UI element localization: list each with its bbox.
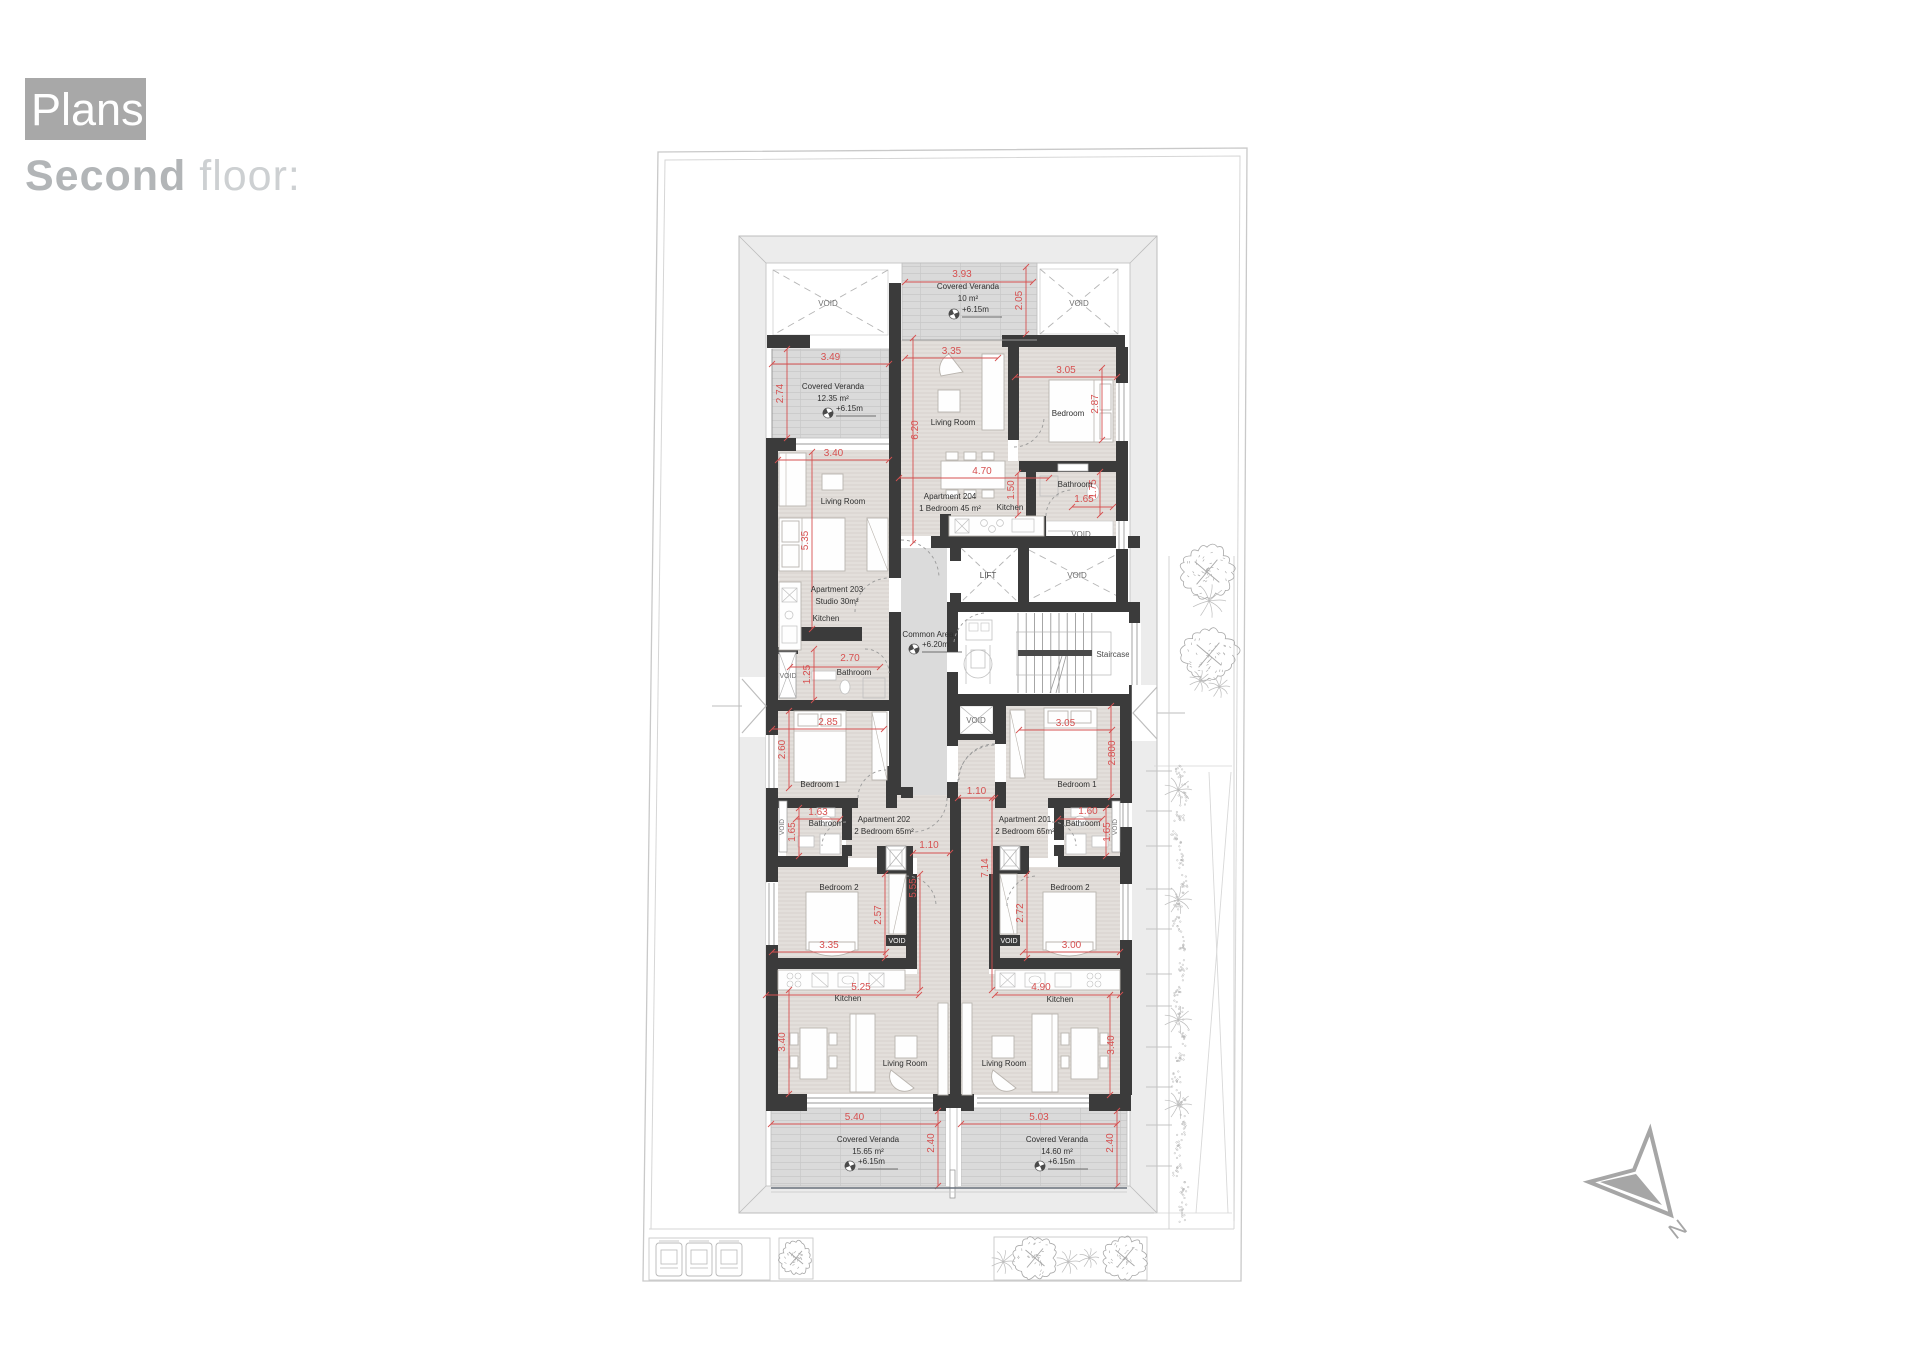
svg-text:1.60: 1.60 [1078,806,1098,817]
svg-text:1 Bedroom 45 m²: 1 Bedroom 45 m² [919,504,981,513]
svg-text:VOID: VOID [888,938,905,945]
svg-text:Living Room: Living Room [931,418,976,427]
svg-text:2 Bedroom 65m²: 2 Bedroom 65m² [854,827,914,836]
svg-text:Bedroom 2: Bedroom 2 [1050,883,1090,892]
svg-text:Apartment 202: Apartment 202 [858,815,911,824]
svg-text:LIFT: LIFT [980,571,997,580]
svg-text:3.35: 3.35 [819,940,839,951]
svg-text:2.800: 2.800 [1107,740,1118,765]
svg-text:Apartment 204: Apartment 204 [924,492,977,501]
svg-text:1.65: 1.65 [1102,822,1113,842]
svg-text:Kitchen: Kitchen [835,994,862,1003]
svg-text:2.40: 2.40 [926,1133,937,1153]
svg-text:Plans: Plans [31,84,144,135]
svg-text:VOID: VOID [779,673,796,680]
svg-text:2.72: 2.72 [1015,903,1026,923]
svg-text:+6.15m: +6.15m [962,305,989,314]
svg-text:VOID: VOID [818,299,838,308]
svg-text:+6.15m: +6.15m [836,404,863,413]
svg-text:2.57: 2.57 [873,905,884,925]
svg-text:1.25: 1.25 [802,664,813,684]
svg-text:Kitchen: Kitchen [997,503,1024,512]
svg-text:1.10: 1.10 [967,786,987,797]
svg-text:VOID: VOID [1067,571,1087,580]
svg-text:Living Room: Living Room [982,1059,1027,1068]
svg-text:2.87: 2.87 [1090,394,1101,414]
svg-text:VOID: VOID [1069,299,1089,308]
svg-text:2.70: 2.70 [840,653,860,664]
svg-text:Living Room: Living Room [821,497,866,506]
svg-text:Studio 30m²: Studio 30m² [815,597,858,606]
svg-text:Covered Veranda: Covered Veranda [937,282,1000,291]
svg-text:3.05: 3.05 [1056,365,1076,376]
svg-text:+6.15m: +6.15m [1048,1157,1075,1166]
svg-text:3.40: 3.40 [824,448,844,459]
svg-text:2.85: 2.85 [818,717,838,728]
svg-text:VOID: VOID [779,819,786,835]
svg-text:Apartment 201: Apartment 201 [999,815,1052,824]
svg-text:N: N [1664,1214,1692,1243]
svg-text:Covered Veranda: Covered Veranda [802,382,865,391]
svg-text:12.35 m²: 12.35 m² [817,394,849,403]
svg-text:Bedroom 1: Bedroom 1 [800,780,840,789]
svg-text:Bathroom: Bathroom [1058,480,1093,489]
svg-text:Bathroom: Bathroom [1066,819,1101,828]
svg-text:Second floor:: Second floor: [25,152,301,200]
svg-text:4.90: 4.90 [1031,982,1051,993]
svg-text:14.60 m²: 14.60 m² [1041,1147,1073,1156]
svg-text:5.25: 5.25 [851,982,871,993]
svg-text:Covered Veranda: Covered Veranda [1026,1135,1089,1144]
svg-text:5.35: 5.35 [800,530,811,550]
svg-text:2.05: 2.05 [1014,290,1025,310]
svg-text:Kitchen: Kitchen [813,614,840,623]
svg-text:VOID: VOID [1000,938,1017,945]
svg-text:1.10: 1.10 [919,840,939,851]
svg-text:3.49: 3.49 [821,352,841,363]
svg-text:1.65: 1.65 [1074,494,1094,505]
svg-text:Kitchen: Kitchen [1047,995,1074,1004]
svg-text:3.05: 3.05 [1056,718,1076,729]
svg-text:3.93: 3.93 [952,269,972,280]
svg-text:5.40: 5.40 [845,1112,865,1123]
svg-text:Bathroom: Bathroom [809,819,844,828]
svg-text:Staircase: Staircase [1096,650,1130,659]
svg-text:Bedroom 2: Bedroom 2 [819,883,859,892]
svg-text:2.60: 2.60 [777,739,788,759]
svg-text:1.65: 1.65 [787,822,798,842]
svg-text:VOID: VOID [966,716,986,725]
svg-text:3.00: 3.00 [1062,940,1082,951]
svg-text:15.65 m²: 15.65 m² [852,1147,884,1156]
svg-text:7.14: 7.14 [980,858,991,878]
svg-text:+6.15m: +6.15m [858,1157,885,1166]
svg-text:Apartment 203: Apartment 203 [811,585,864,594]
svg-text:6.20: 6.20 [910,420,921,440]
svg-text:1.50: 1.50 [1006,480,1017,500]
svg-text:2 Bedroom 65m²: 2 Bedroom 65m² [995,827,1055,836]
svg-text:Common Area: Common Area [902,630,954,639]
svg-text:2.40: 2.40 [1105,1133,1116,1153]
svg-text:+6.20m: +6.20m [922,640,949,649]
svg-text:2.74: 2.74 [775,383,786,403]
svg-text:5.03: 5.03 [1029,1112,1049,1123]
svg-text:Bedroom: Bedroom [1052,409,1085,418]
svg-text:5.55: 5.55 [908,878,919,898]
svg-text:Bedroom 1: Bedroom 1 [1057,780,1097,789]
svg-text:Living Room: Living Room [883,1059,928,1068]
svg-text:3.40: 3.40 [1106,1035,1117,1055]
svg-text:4.70: 4.70 [972,466,992,477]
svg-text:Bathroom: Bathroom [837,668,872,677]
svg-text:3.35: 3.35 [942,346,962,357]
svg-text:VOID: VOID [1112,819,1119,835]
svg-text:10 m²: 10 m² [958,294,979,303]
svg-text:Covered Veranda: Covered Veranda [837,1135,900,1144]
svg-text:1.63: 1.63 [808,807,828,818]
svg-text:3.40: 3.40 [777,1032,788,1052]
